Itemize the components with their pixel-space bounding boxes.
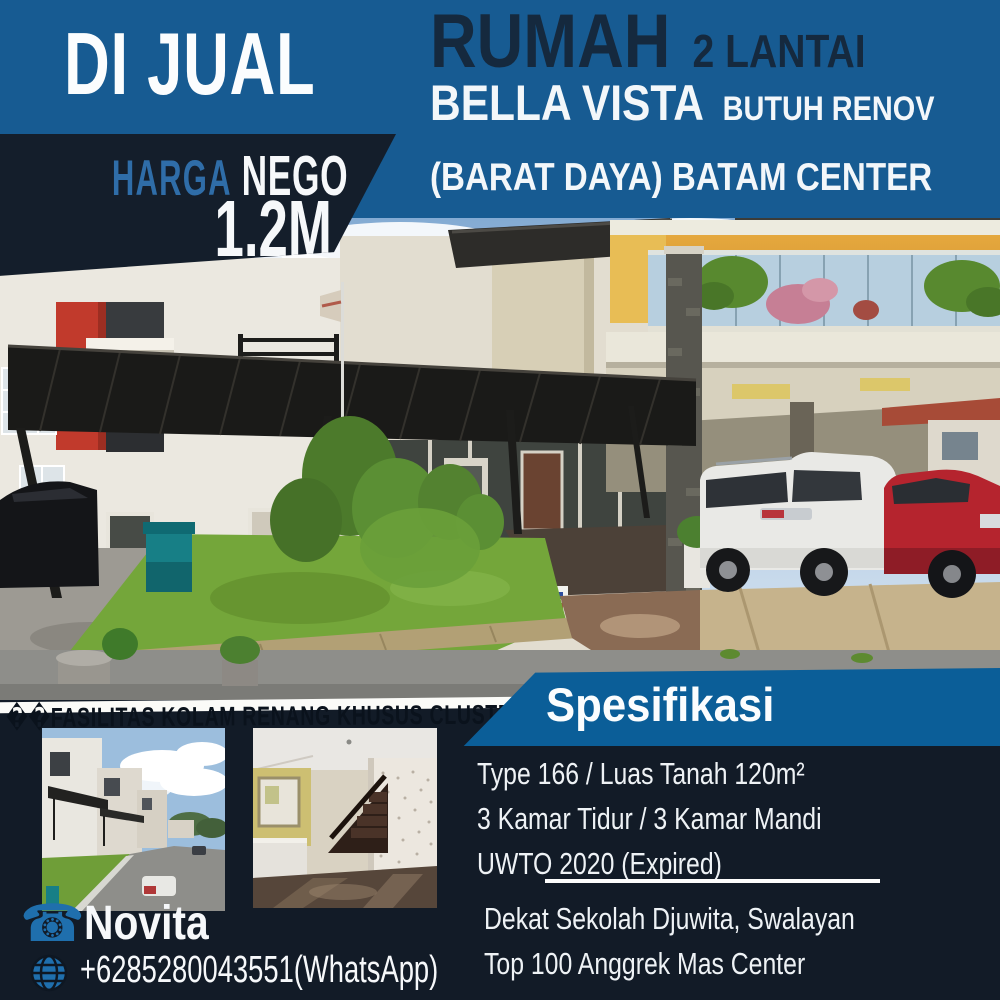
photo-thumbnail-interior: [253, 728, 437, 908]
nearby-line-2: Top 100 Anggrek Mas Center: [484, 948, 805, 979]
photo-thumbnail-street: [42, 728, 225, 911]
main-property-photo: [0, 218, 1000, 700]
trash-bin: [143, 522, 195, 592]
header-location: (BARAT DAYA) BATAM CENTER: [430, 158, 932, 197]
specs-divider: [545, 879, 880, 883]
header-property-name: BELLA VISTA: [430, 78, 704, 128]
spec-line-type: Type 166 / Luas Tanah 120m²: [477, 758, 805, 789]
header-condition: BUTUH RENOV: [723, 92, 935, 126]
sale-badge: DI JUAL: [64, 20, 315, 108]
specs-banner: Spesifikasi: [450, 668, 1000, 746]
header-title-tag: 2 LANTAI: [693, 28, 866, 74]
globe-icon: [28, 952, 70, 994]
contact-phone: +6285280043551(WhatsApp): [80, 950, 438, 992]
header-location-row: (BARAT DAYA) BATAM CENTER: [430, 158, 932, 197]
header-title: RUMAH: [430, 4, 670, 80]
contact-name: Novita: [84, 898, 209, 951]
telephone-icon: ☎: [20, 898, 85, 950]
flyer-root: DI JUAL RUMAH 2 LANTAI BELLA VISTA BUTUH…: [0, 0, 1000, 1000]
black-car: [0, 481, 99, 588]
header-name-row: BELLA VISTA BUTUH RENOV: [430, 78, 935, 128]
nearby-line-1: Dekat Sekolah Djuwita, Swalayan: [484, 903, 855, 934]
specs-heading: Spesifikasi: [546, 681, 774, 728]
spec-line-uwto: UWTO 2020 (Expired): [477, 848, 722, 879]
header-title-row: RUMAH 2 LANTAI: [430, 4, 866, 80]
spec-line-rooms: 3 Kamar Tidur / 3 Kamar Mandi: [477, 803, 822, 834]
